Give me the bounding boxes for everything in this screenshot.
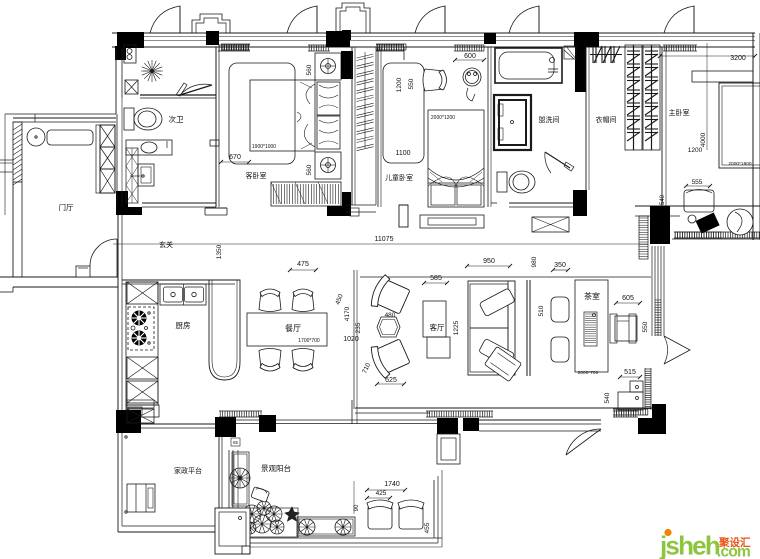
- svg-text:625: 625: [385, 377, 397, 384]
- svg-text:475: 475: [297, 261, 309, 268]
- svg-text:980: 980: [531, 256, 538, 267]
- svg-text:950: 950: [483, 258, 495, 265]
- svg-text:670: 670: [229, 154, 241, 161]
- svg-text:.com: .com: [717, 544, 750, 559]
- svg-text:2000*1200: 2000*1200: [431, 115, 455, 121]
- svg-text:1740: 1740: [384, 481, 400, 488]
- svg-text:550: 550: [408, 78, 415, 89]
- svg-text:厨房: 厨房: [176, 320, 191, 330]
- svg-text:衣帽间: 衣帽间: [596, 115, 617, 124]
- svg-text:65: 65: [233, 440, 239, 445]
- svg-text:235: 235: [355, 322, 362, 333]
- svg-text:90: 90: [354, 504, 360, 511]
- svg-text:540: 540: [604, 392, 611, 403]
- svg-text:盥洗间: 盥洗间: [539, 115, 560, 124]
- svg-text:景观阳台: 景观阳台: [261, 463, 291, 473]
- svg-text:425: 425: [376, 490, 387, 497]
- svg-text:585: 585: [430, 275, 442, 282]
- svg-text:2000*700: 2000*700: [578, 370, 599, 376]
- svg-text:主卧室: 主卧室: [669, 108, 690, 117]
- svg-text:1900*1000: 1900*1000: [252, 144, 276, 150]
- svg-text:600: 600: [464, 53, 476, 60]
- svg-text:1225: 1225: [453, 320, 460, 335]
- svg-text:480: 480: [385, 312, 396, 319]
- svg-text:家政平台: 家政平台: [174, 466, 202, 475]
- svg-text:茶室: 茶室: [584, 291, 600, 301]
- svg-text:客卧室: 客卧室: [246, 171, 267, 180]
- svg-text:510: 510: [538, 305, 545, 316]
- svg-text:次卫: 次卫: [169, 114, 184, 124]
- svg-text:1700*700: 1700*700: [298, 338, 320, 344]
- svg-text:515: 515: [624, 369, 636, 376]
- svg-text:2000*1800: 2000*1800: [728, 161, 752, 167]
- svg-text:玄关: 玄关: [159, 240, 173, 249]
- svg-text:1200: 1200: [688, 147, 703, 154]
- svg-text:餐厅: 餐厅: [285, 324, 301, 333]
- svg-text:350: 350: [554, 262, 566, 269]
- svg-text:儿童卧室: 儿童卧室: [385, 173, 413, 182]
- svg-text:1100: 1100: [395, 150, 410, 157]
- svg-text:4170: 4170: [344, 306, 351, 321]
- svg-text:605: 605: [622, 295, 634, 302]
- svg-text:455: 455: [424, 522, 431, 533]
- svg-text:555: 555: [692, 179, 703, 186]
- svg-text:540: 540: [660, 194, 666, 205]
- svg-text:1020: 1020: [343, 336, 359, 343]
- svg-text:门厅: 门厅: [59, 203, 74, 212]
- svg-text:560: 560: [306, 64, 313, 75]
- svg-text:560: 560: [306, 164, 313, 175]
- svg-text:4000: 4000: [700, 132, 707, 147]
- svg-text:1200: 1200: [396, 77, 403, 92]
- svg-text:11075: 11075: [375, 236, 394, 243]
- svg-text:1350: 1350: [216, 244, 223, 259]
- svg-text:客厅: 客厅: [430, 322, 445, 332]
- svg-text:550: 550: [642, 321, 649, 332]
